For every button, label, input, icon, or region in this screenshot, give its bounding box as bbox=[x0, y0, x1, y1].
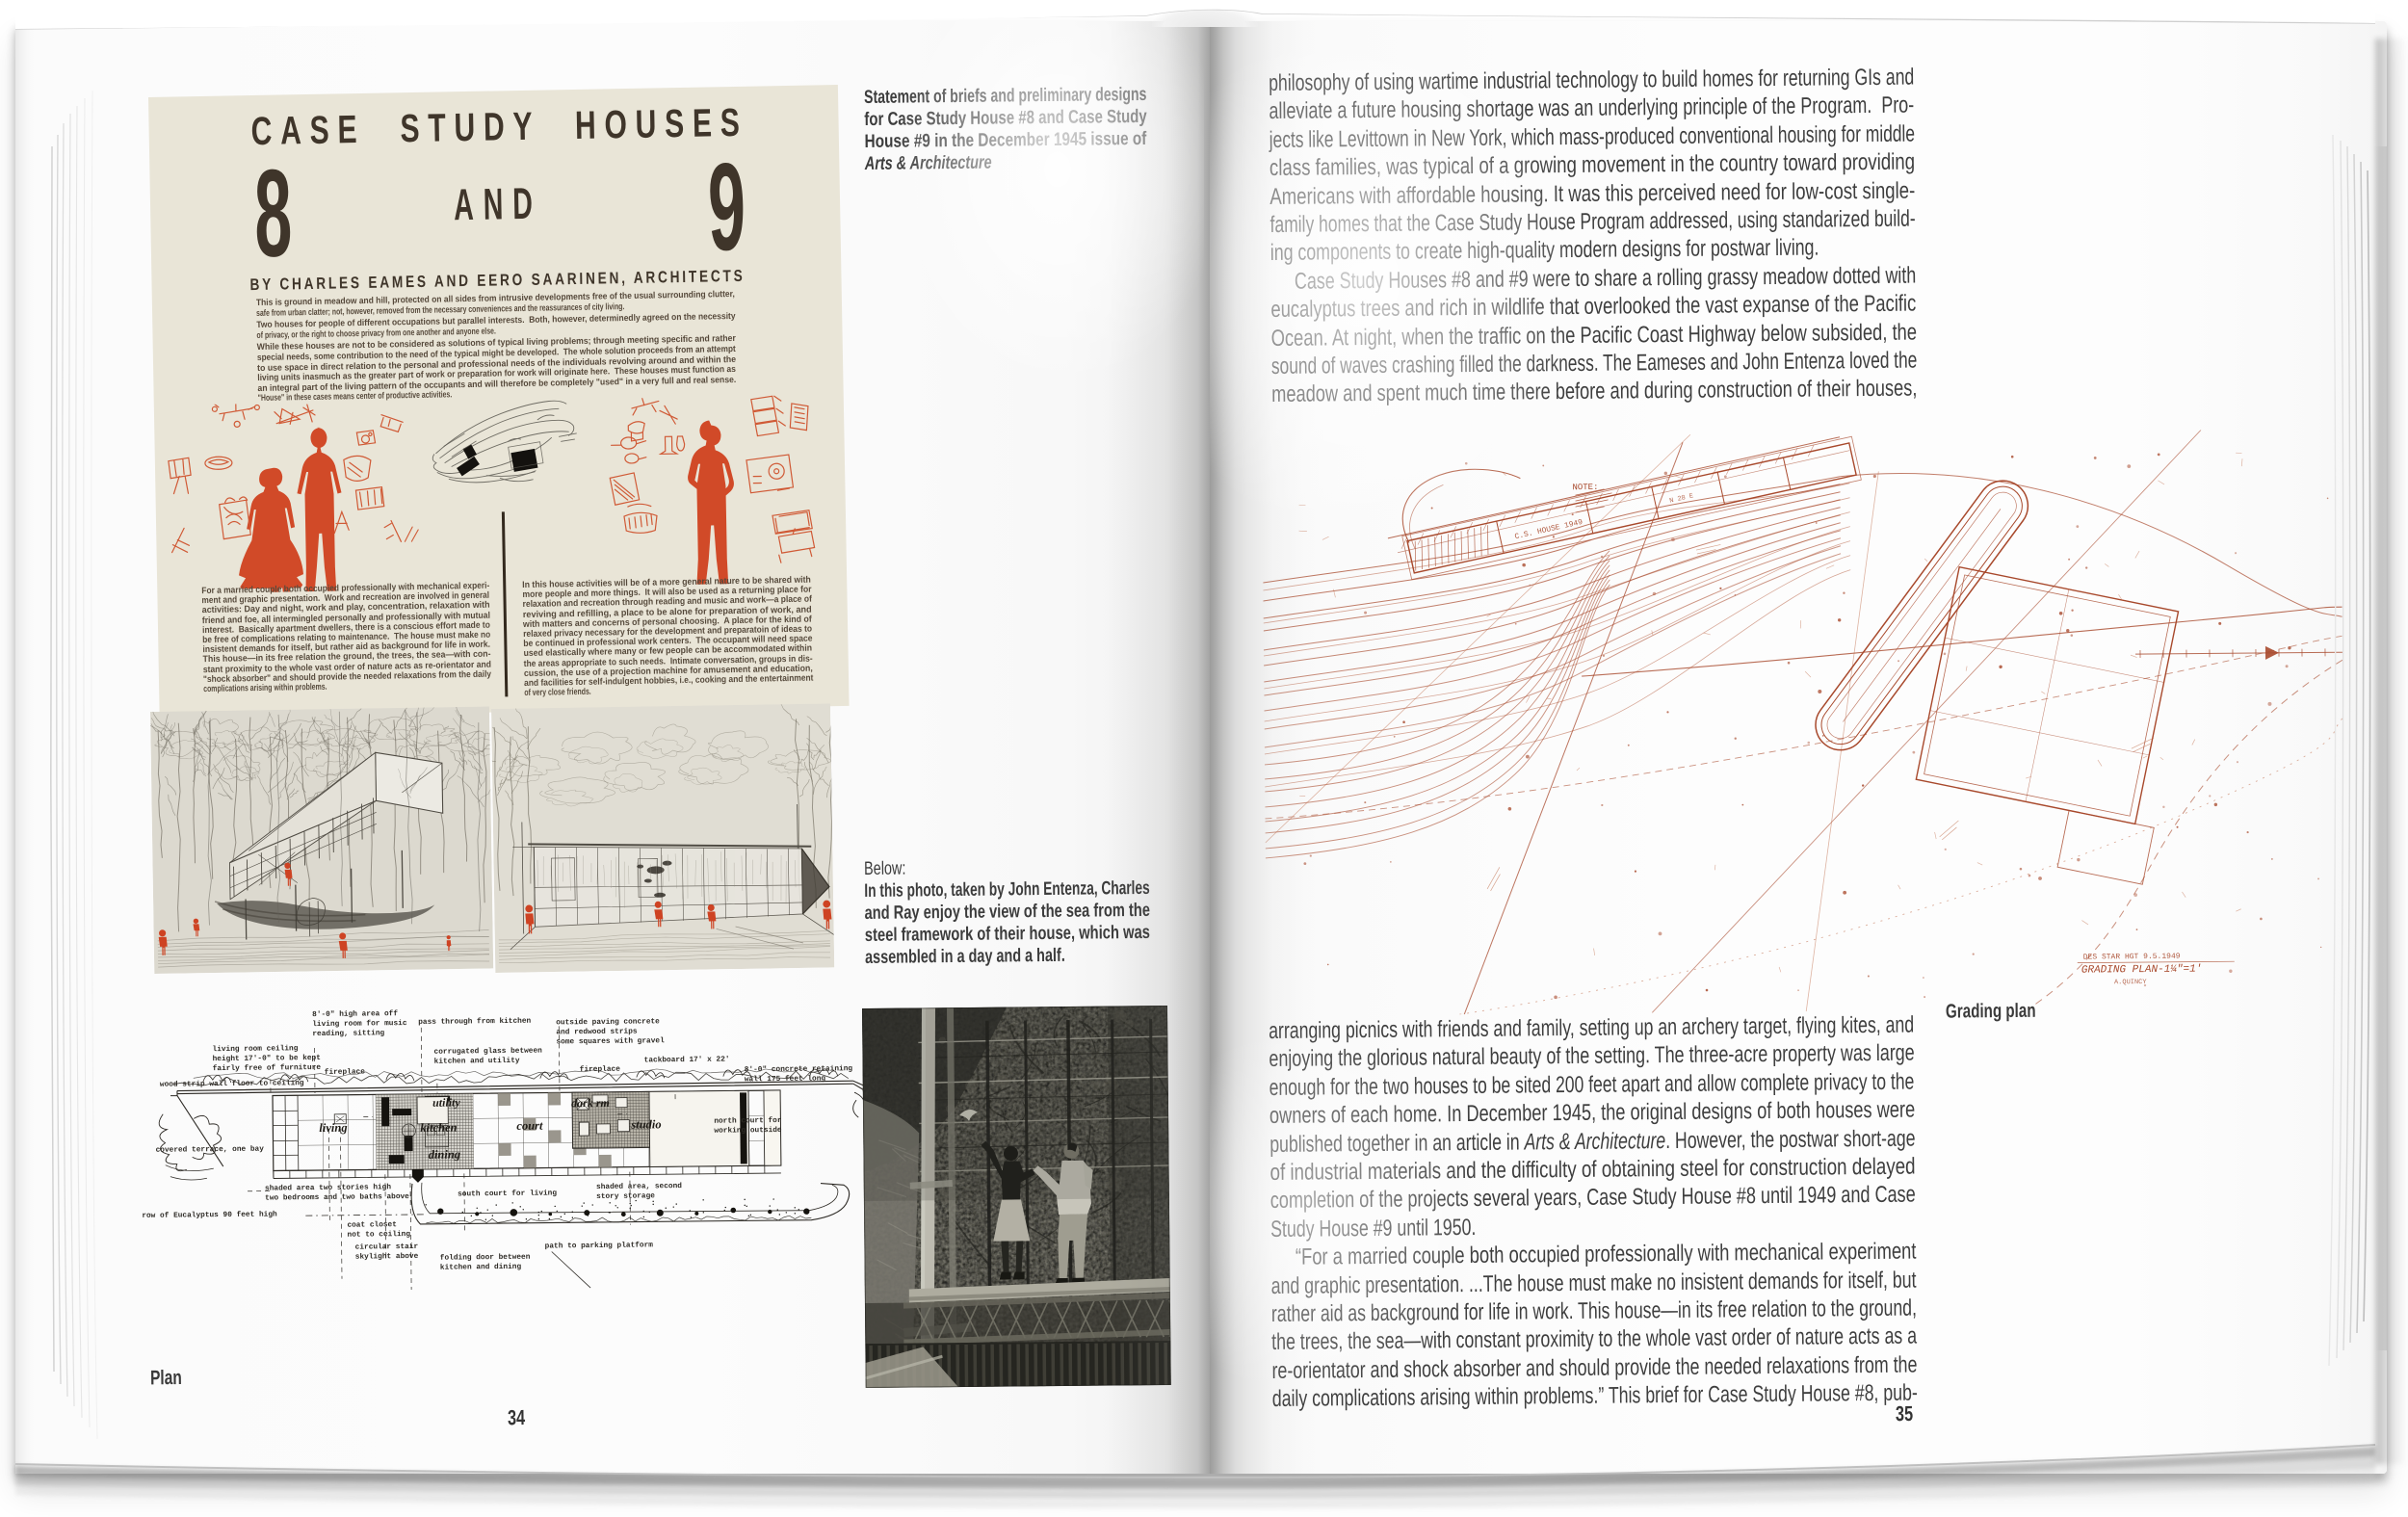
svg-text:NOTE:: NOTE: bbox=[1572, 483, 1598, 492]
svg-text:working outside: working outside bbox=[714, 1127, 782, 1136]
svg-text:fireplace: fireplace bbox=[580, 1066, 621, 1074]
svg-text:folding door between: folding door between bbox=[440, 1254, 531, 1263]
svg-text:not to ceiling: not to ceiling bbox=[347, 1231, 410, 1240]
svg-text:utility: utility bbox=[432, 1095, 460, 1109]
svg-text:outside paving concrete: outside paving concrete bbox=[556, 1018, 660, 1027]
svg-text:story storage: story storage bbox=[596, 1192, 655, 1201]
svg-text:kitchen and dining: kitchen and dining bbox=[440, 1264, 522, 1272]
svg-text:studio: studio bbox=[630, 1117, 661, 1131]
svg-text:north court for: north court for bbox=[714, 1117, 782, 1126]
svg-text:8'-0" concrete retaining: 8'-0" concrete retaining bbox=[745, 1065, 853, 1074]
svg-text:8'-0" high area off: 8'-0" high area off bbox=[312, 1010, 398, 1019]
svg-text:A.QUINCY: A.QUINCY bbox=[2114, 979, 2147, 986]
svg-text:row of Eucalyptus 90 feet high: row of Eucalyptus 90 feet high bbox=[142, 1211, 277, 1219]
svg-text:corrugated glass between: corrugated glass between bbox=[434, 1048, 543, 1057]
svg-text:dark rm: dark rm bbox=[571, 1096, 610, 1110]
svg-text:shaded area two stories high: shaded area two stories high bbox=[265, 1184, 391, 1192]
svg-text:court: court bbox=[516, 1119, 543, 1133]
svg-text:circular stair: circular stair bbox=[355, 1243, 419, 1252]
svg-text:wall 175 feet long: wall 175 feet long bbox=[745, 1075, 826, 1084]
svg-text:dining: dining bbox=[429, 1147, 461, 1161]
svg-text:path to parking platform: path to parking platform bbox=[545, 1242, 654, 1250]
svg-text:tackboard 17' x 22': tackboard 17' x 22' bbox=[644, 1057, 730, 1065]
svg-text:covered terrace, one bay: covered terrace, one bay bbox=[156, 1146, 265, 1155]
svg-text:fairly free of furniture: fairly free of furniture bbox=[213, 1064, 322, 1073]
svg-text:kitchen and utility: kitchen and utility bbox=[434, 1058, 520, 1066]
svg-text:two bedrooms and two baths abo: two bedrooms and two baths above bbox=[265, 1193, 409, 1203]
svg-text:coat closet: coat closet bbox=[347, 1221, 397, 1230]
svg-text:DES STAR HGT 9.5.1949: DES STAR HGT 9.5.1949 bbox=[2083, 953, 2181, 962]
svg-text:height 17'-0" to be kept: height 17'-0" to be kept bbox=[213, 1055, 321, 1063]
svg-text:wood strip wall floor to ceili: wood strip wall floor to ceiling bbox=[160, 1080, 304, 1089]
svg-text:fireplace: fireplace bbox=[325, 1068, 366, 1076]
svg-text:some squares with gravel: some squares with gravel bbox=[556, 1037, 665, 1046]
svg-text:kitchen: kitchen bbox=[420, 1121, 457, 1135]
svg-text:living room ceiling: living room ceiling bbox=[212, 1045, 298, 1054]
svg-text:GRADING PLAN-1¼"=1': GRADING PLAN-1¼"=1' bbox=[2081, 964, 2203, 977]
svg-text:shaded area, second: shaded area, second bbox=[596, 1183, 682, 1191]
svg-text:reading, sitting: reading, sitting bbox=[312, 1030, 384, 1038]
svg-text:south court for living: south court for living bbox=[458, 1190, 557, 1198]
svg-text:living: living bbox=[319, 1121, 347, 1135]
svg-text:and redwood strips: and redwood strips bbox=[556, 1029, 638, 1037]
svg-text:pass through from kitchen: pass through from kitchen bbox=[418, 1018, 531, 1027]
svg-text:living room for music: living room for music bbox=[312, 1020, 407, 1029]
svg-text:skylight above: skylight above bbox=[355, 1253, 419, 1262]
